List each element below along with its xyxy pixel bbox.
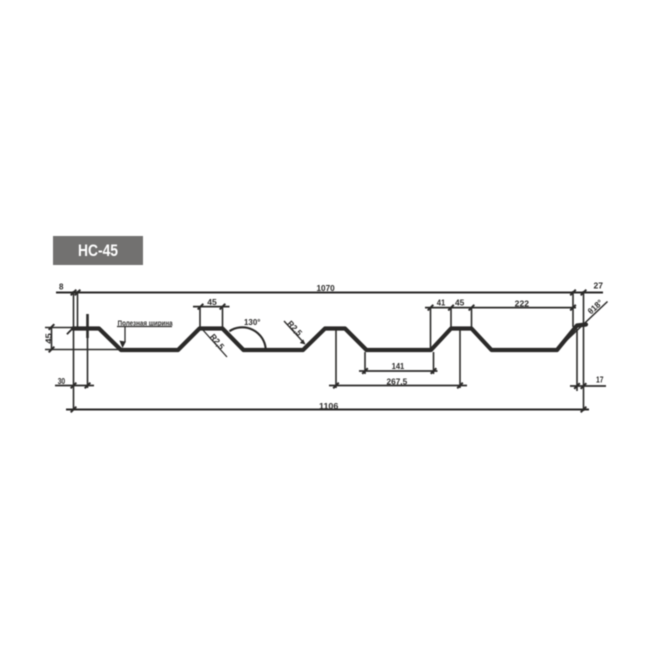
svg-text:41: 41 xyxy=(437,299,446,308)
svg-text:130°: 130° xyxy=(244,318,260,327)
svg-text:222: 222 xyxy=(515,299,530,308)
svg-text:45: 45 xyxy=(207,298,217,307)
svg-text:45: 45 xyxy=(455,299,465,308)
svg-text:Полезная ширина: Полезная ширина xyxy=(118,318,174,327)
svg-text:θ18°: θ18° xyxy=(586,297,606,316)
svg-text:30: 30 xyxy=(58,377,66,386)
svg-text:1070: 1070 xyxy=(317,284,336,293)
svg-text:45: 45 xyxy=(45,333,54,344)
svg-text:R2,5: R2,5 xyxy=(285,319,304,338)
svg-text:17: 17 xyxy=(596,376,604,385)
svg-text:27: 27 xyxy=(594,282,604,291)
svg-text:8: 8 xyxy=(59,283,64,292)
svg-text:267,5: 267,5 xyxy=(387,378,408,387)
svg-text:141: 141 xyxy=(392,362,405,371)
svg-text:НС-45: НС-45 xyxy=(78,241,118,260)
svg-text:R2,5: R2,5 xyxy=(208,332,227,352)
svg-text:1106: 1106 xyxy=(319,402,339,411)
